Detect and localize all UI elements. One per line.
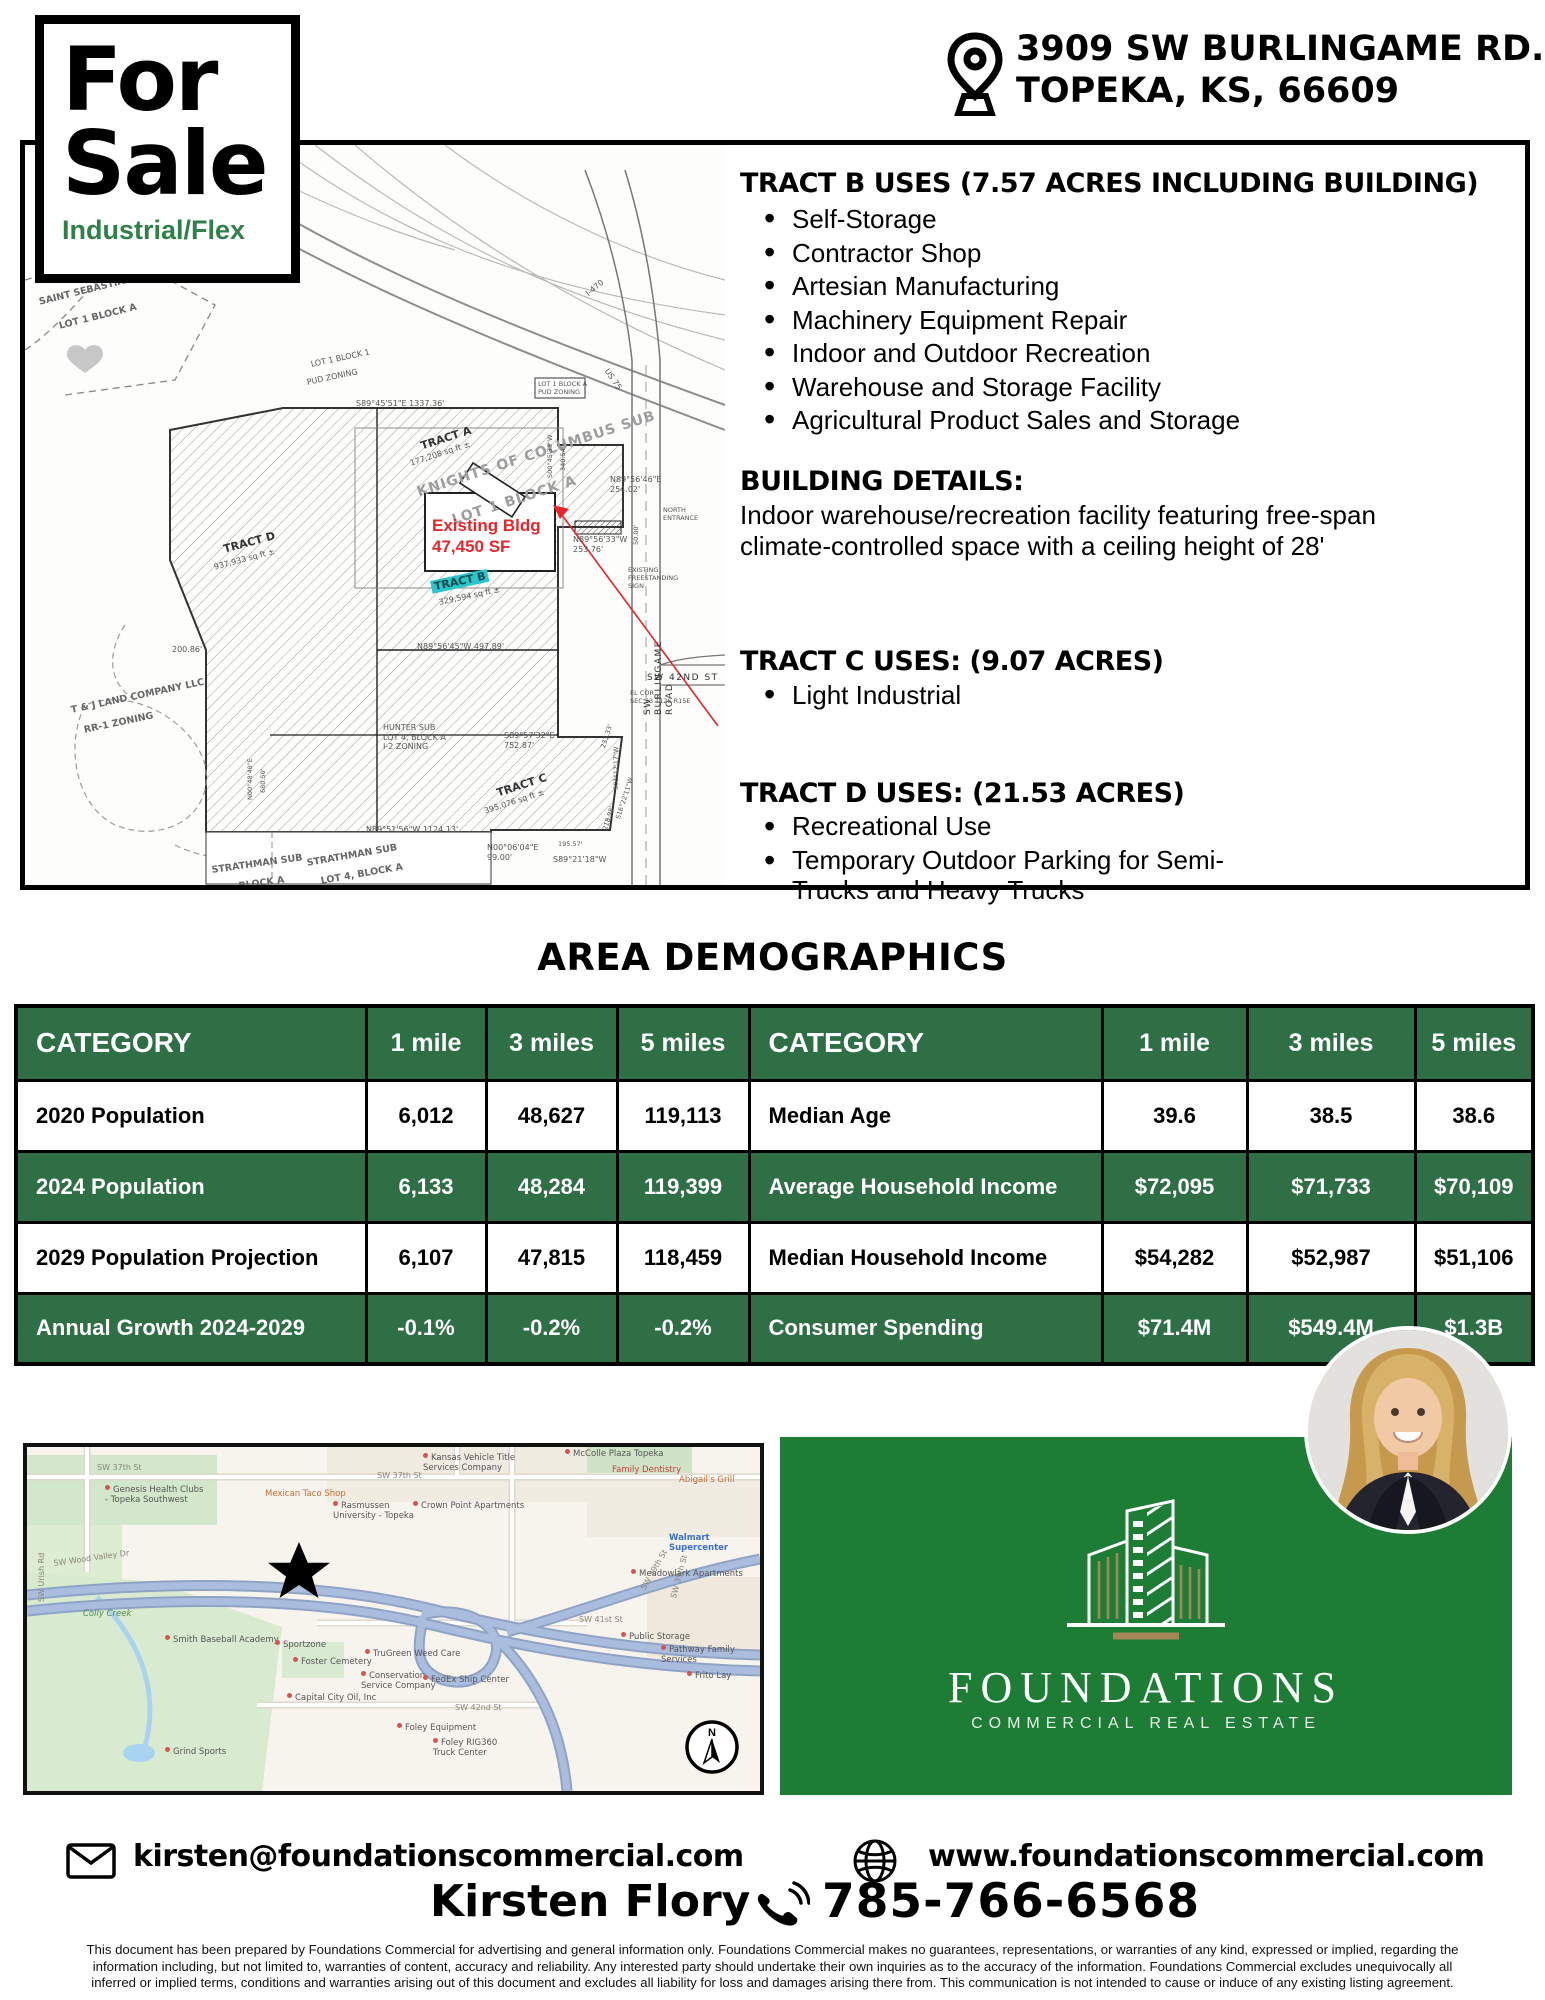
plat-label: S89°57'32"E 752.87' [504,731,555,750]
map-label: Foley Equipment [397,1723,476,1733]
contact-website: www.foundationscommercial.com [928,1839,1484,1874]
table-cell: 2020 Population [16,1080,366,1151]
table-row: Annual Growth 2024-2029-0.1%-0.2%-0.2%Co… [16,1293,1533,1364]
map-label: Foster Cemetery [293,1657,372,1667]
map-label: Genesis Health Clubs - Topeka Southwest [105,1485,203,1505]
table-header-cell: 1 mile [366,1006,486,1080]
table-header-cell: CATEGORY [16,1006,366,1080]
tract-c-uses-list: Light Industrial [752,680,1492,714]
map-label: SW 37th St [377,1471,422,1481]
tract-d-heading: TRACT D USES: (21.53 ACRES) [740,778,1184,809]
bullet-item: Indoor and Outdoor Recreation [752,338,1492,372]
map-label: Sportzone [275,1640,326,1650]
plat-label: S89°21'18"W [553,855,606,865]
for-sale-banner: For Sale Industrial/Flex [35,15,300,283]
area-map: N SW 37th StKansas Vehicle Title Service… [23,1443,764,1795]
bullet-text: Artesian Manufacturing [792,271,1059,301]
table-cell: 2029 Population Projection [16,1222,366,1293]
disclaimer-line: This document has been prepared by Found… [0,1942,1545,1959]
plat-label: LOT 1 BLOCK A PUD ZONING [538,381,587,397]
table-cell: $71.4M [1102,1293,1247,1364]
map-label: Grind Sports [165,1747,226,1757]
map-label: TruGreen Weed Care [365,1649,460,1659]
table-cell: -0.1% [366,1293,486,1364]
bullet-text: Agricultural Product Sales and Storage [792,405,1240,435]
address-line-2: TOPEKA, KS, 66609 [1016,70,1544,112]
table-cell: 6,107 [366,1222,486,1293]
disclaimer: This document has been prepared by Found… [0,1942,1545,1992]
table-cell: $72,095 [1102,1151,1247,1222]
flyer-page: For Sale Industrial/Flex 3909 SW BURLING… [0,0,1545,2000]
bullet-text: Warehouse and Storage Facility [792,372,1161,402]
map-label: SW 41st St [579,1615,623,1625]
map-label: Pathway Family Services [661,1645,760,1665]
table-cell: Median Household Income [749,1222,1102,1293]
table-cell: 38.5 [1247,1080,1415,1151]
brand-name: FOUNDATIONS [780,1662,1512,1713]
bullet-item: Artesian Manufacturing [752,271,1492,305]
plat-label: HUNTER SUB LOT 4, BLOCK A I-2 ZONING [383,723,446,752]
bullet-item: Contractor Shop [752,238,1492,272]
table-cell: 47,815 [486,1222,617,1293]
map-label: SW Urish Rd [37,1553,47,1602]
table-cell: -0.2% [617,1293,749,1364]
map-label: FedEx Ship Center [423,1675,509,1685]
plat-label: Existing Bldg 47,450 SF [432,515,541,558]
table-cell: 119,113 [617,1080,749,1151]
bullet-item: Temporary Outdoor Parking for Semi-Truck… [752,846,1272,906]
plat-label: S01°12'17"W [613,747,621,790]
plat-label: SW 42ND ST [647,673,719,684]
plat-label: N89°51'56"W 1124.13' [366,825,458,835]
table-header-cell: 1 mile [1102,1006,1247,1080]
map-label: Capital City Oil, Inc [287,1693,376,1703]
table-cell: $71,733 [1247,1151,1415,1222]
table-cell: 6,012 [366,1080,486,1151]
map-label: Family Dentistry [612,1465,681,1475]
plat-label: N00°06'04"E 99.00' [487,843,538,862]
bullet-item: Machinery Equipment Repair [752,305,1492,339]
map-label: Foley RIG360 Truck Center [433,1738,497,1758]
table-cell: Annual Growth 2024-2029 [16,1293,366,1364]
plat-label: 680.50' [260,768,268,793]
plat-label: N89°56'33"W 253.76' [573,535,627,554]
table-header-cell: 5 miles [1415,1006,1533,1080]
bullet-text: Temporary Outdoor Parking for Semi-Truck… [792,845,1224,905]
plat-label: EL COR SEC 23 T12S R15E [630,690,691,706]
plat-label: 340.54' [560,446,568,471]
map-label: Mexican Taco Shop [265,1489,346,1499]
property-address: 3909 SW BURLINGAME RD. TOPEKA, KS, 66609 [1016,28,1544,112]
brand-tagline: COMMERCIAL REAL ESTATE [780,1715,1512,1733]
table-cell: 38.6 [1415,1080,1533,1151]
plat-label: N89°56'46"E 254.02' [610,475,661,494]
table-cell: -0.2% [486,1293,617,1364]
table-cell: 6,133 [366,1151,486,1222]
address-line-1: 3909 SW BURLINGAME RD. [1016,28,1544,70]
agent-headshot [1308,1330,1508,1530]
plat-label: N00°48'48"E [247,758,255,800]
bullet-item: Warehouse and Storage Facility [752,372,1492,406]
bullet-item: Light Industrial [752,680,1492,714]
map-label: Abigail's Grill [679,1475,735,1485]
bullet-item: Self-Storage [752,204,1492,238]
tract-c-heading: TRACT C USES: (9.07 ACRES) [740,646,1164,677]
table-cell: $52,987 [1247,1222,1415,1293]
building-details-heading: BUILDING DETAILS: [740,466,1023,497]
map-label: Walmart Supercenter [669,1533,760,1553]
table-cell: 39.6 [1102,1080,1247,1151]
plat-label: S89°45'51"E 1337.36' [356,399,444,409]
map-label: McColle Plaza Topeka [565,1449,663,1459]
table-header-cell: 3 miles [486,1006,617,1080]
bullet-text: Indoor and Outdoor Recreation [792,338,1150,368]
property-type-label: Industrial/Flex [62,215,291,246]
map-label: SW 37th St [97,1463,142,1473]
table-cell: Median Age [749,1080,1102,1151]
table-cell: Average Household Income [749,1151,1102,1222]
compass-icon: N [687,1722,737,1772]
table-cell: $51,106 [1415,1222,1533,1293]
table-cell: $70,109 [1415,1151,1533,1222]
agent-name: Kirsten Flory [430,1876,750,1927]
plat-label: EXISTING FREESTANDING SIGN [628,567,678,590]
table-header-cell: CATEGORY [749,1006,1102,1080]
table-cell: Consumer Spending [749,1293,1102,1364]
tract-d-uses-list: Recreational UseTemporary Outdoor Parkin… [752,812,1272,910]
bullet-text: Recreational Use [792,811,991,841]
table-cell: 48,627 [486,1080,617,1151]
for-sale-word: For [62,38,291,122]
table-row: 2020 Population6,01248,627119,113Median … [16,1080,1533,1151]
globe-icon [852,1838,898,1889]
bullet-item: Agricultural Product Sales and Storage [752,405,1492,439]
location-pin-icon [946,32,1004,121]
demographics-title: AREA DEMOGRAPHICS [0,936,1545,979]
table-cell: 48,284 [486,1151,617,1222]
map-label: Frito Lay [687,1671,731,1681]
bullet-text: Light Industrial [792,680,961,710]
phone-icon [752,1878,810,1941]
plat-label: S00°45'33"W [547,435,555,478]
table-header-cell: 3 miles [1247,1006,1415,1080]
plat-label: 50.00' [633,525,641,545]
contact-email: kirsten@foundationscommercial.com [133,1839,744,1874]
map-label: Colly Creek [83,1609,131,1619]
bullet-text: Machinery Equipment Repair [792,305,1127,335]
table-header-cell: 5 miles [617,1006,749,1080]
demographics-table: CATEGORY1 mile3 miles5 milesCATEGORY1 mi… [14,1004,1535,1366]
map-label: SW 42nd St [455,1703,502,1713]
for-sale-word: Sale [62,122,291,206]
disclaimer-line: information including, but not limited t… [0,1959,1545,1976]
map-label: Kansas Vehicle Title Services Company [423,1453,515,1473]
table-cell: 118,459 [617,1222,749,1293]
map-label: Public Storage [621,1632,690,1642]
table-row: 2024 Population6,13348,284119,399Average… [16,1151,1533,1222]
tract-b-heading: TRACT B USES (7.57 ACRES INCLUDING BUILD… [740,168,1478,199]
map-label: Crown Point Apartments [413,1501,524,1511]
plat-label: 195.57' [558,841,583,849]
bullet-item: Recreational Use [752,812,1272,842]
buildings-logo-icon [1061,1495,1231,1650]
building-details-body: Indoor warehouse/recreation facility fea… [740,500,1380,561]
map-label: Smith Baseball Academy [165,1635,279,1645]
bullet-text: Contractor Shop [792,238,981,268]
table-cell: 119,399 [617,1151,749,1222]
svg-text:N: N [708,1727,716,1739]
plat-label: 200.86' [172,645,202,655]
tract-b-uses-list: Self-StorageContractor ShopArtesian Manu… [752,204,1492,439]
table-cell: $54,282 [1102,1222,1247,1293]
table-cell: 2024 Population [16,1151,366,1222]
map-label: Rasmussen University - Topeka [333,1501,414,1521]
plat-label: NORTH ENTRANCE [663,507,698,523]
email-icon [66,1843,116,1884]
table-row: 2029 Population Projection6,10747,815118… [16,1222,1533,1293]
disclaimer-line: inferred or implied terms, conditions an… [0,1975,1545,1992]
bullet-text: Self-Storage [792,204,937,234]
plat-label: N89°56'45"W 497.89' [417,642,504,652]
